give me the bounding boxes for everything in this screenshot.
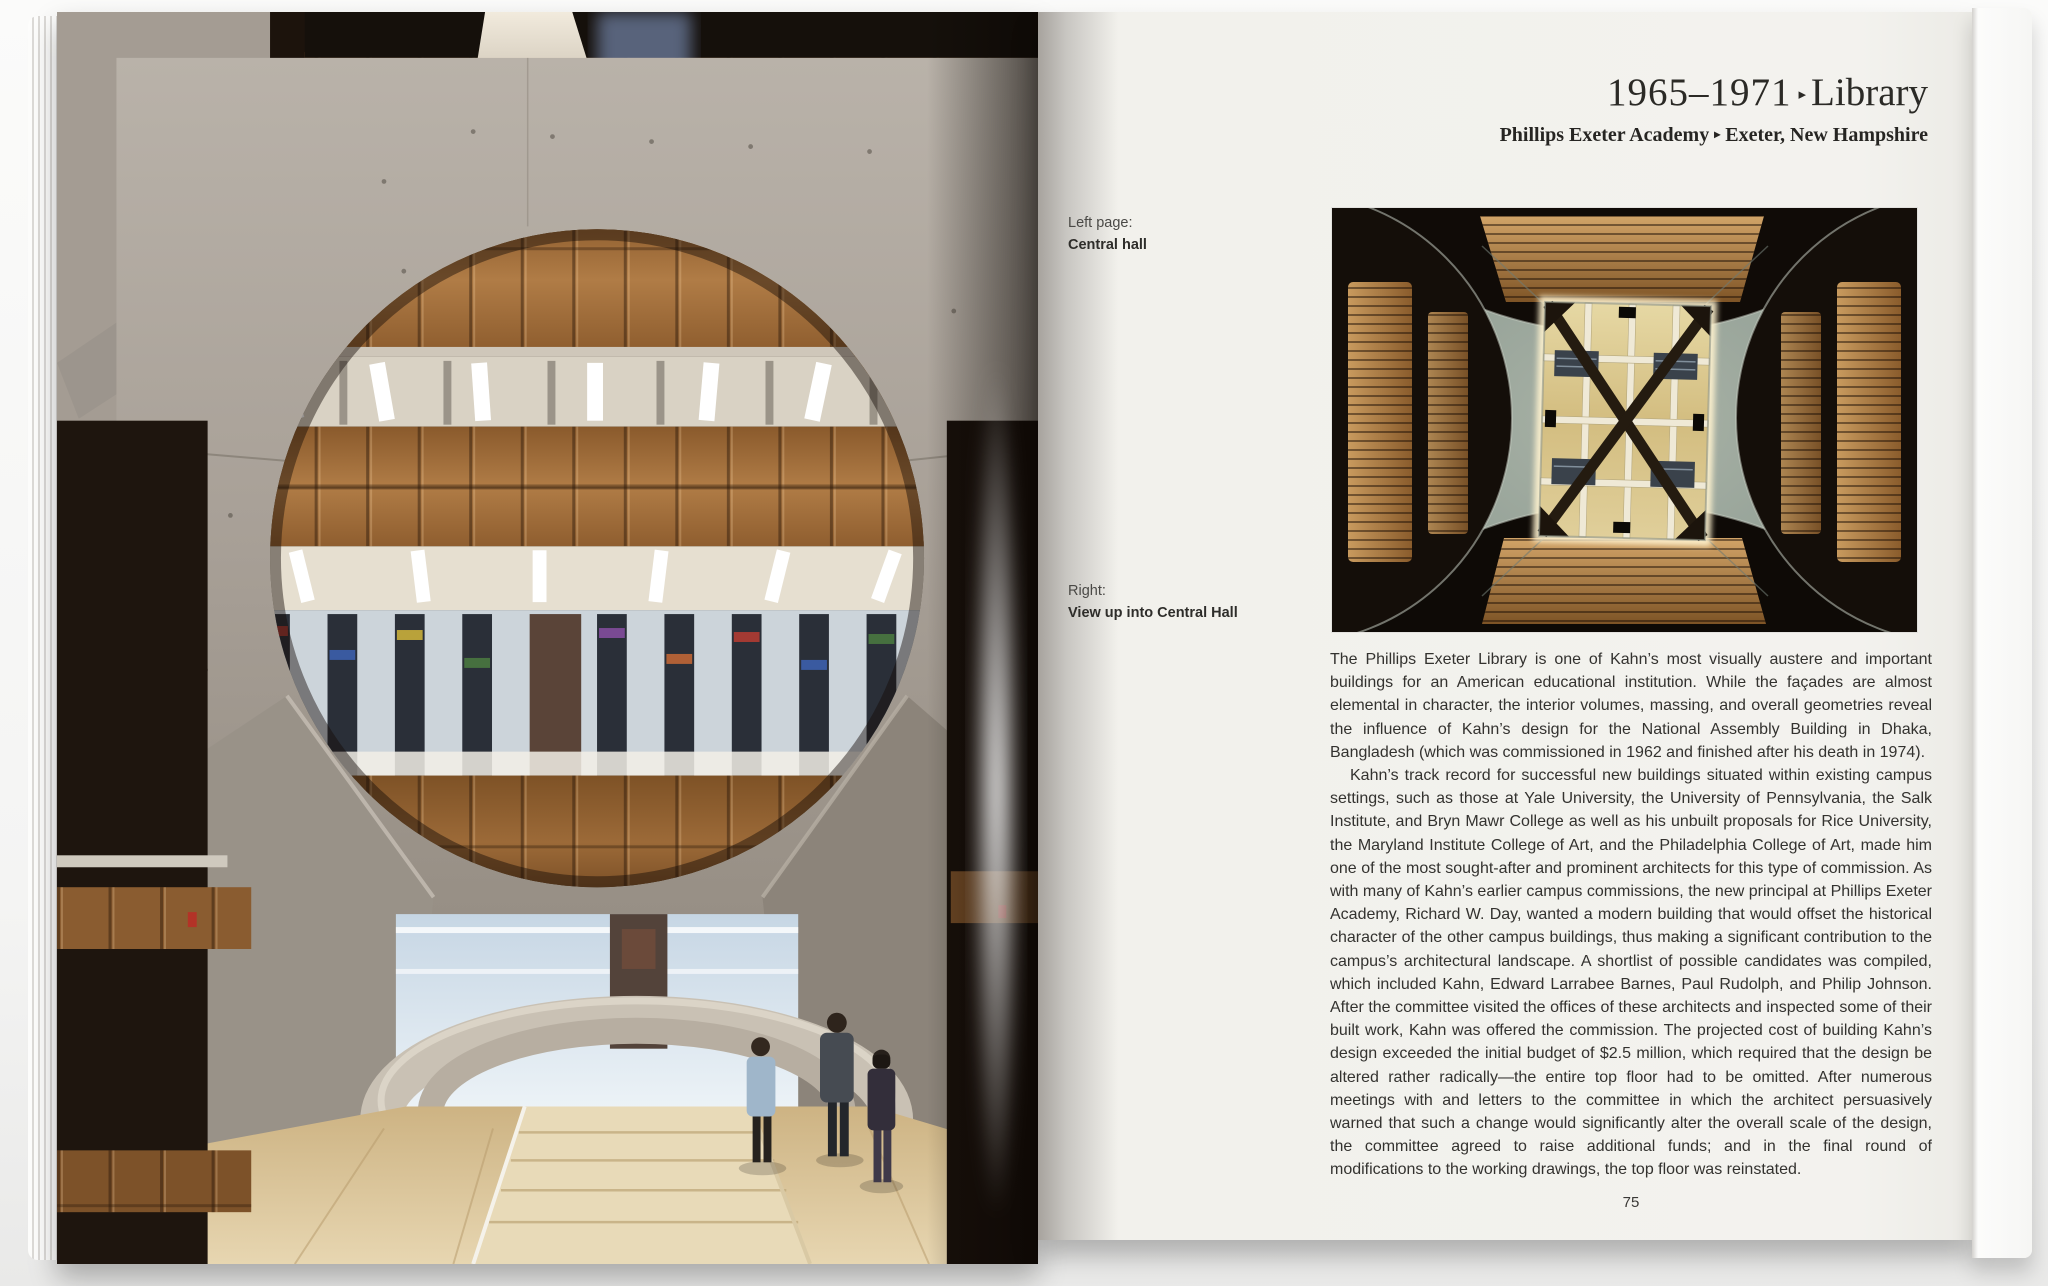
book-spread: 1965–1971▸Library Phillips Exeter Academ… [0,0,2048,1286]
central-hall-photo [57,12,1038,1264]
caption-right: Right: View up into Central Hall [1068,580,1318,624]
gutter-shadow [1038,12,1118,1240]
caption-text: Central hall [1068,234,1318,256]
subtitle-academy: Phillips Exeter Academy [1500,124,1710,146]
left-page [57,12,1038,1264]
left-page-edge-stack [28,16,58,1260]
subtitle-location: Exeter, New Hampshire [1725,124,1928,146]
caption-label: Left page: [1068,212,1318,234]
caption-text: View up into Central Hall [1068,602,1318,624]
page-number: 75 [1330,1194,1932,1211]
article-body: The Phillips Exeter Library is one of Ka… [1330,648,1932,1182]
title-arrow-icon: ▸ [1792,87,1812,103]
right-page-edge [1972,8,2032,1258]
title-name: Library [1811,71,1928,114]
title-years: 1965–1971 [1607,71,1792,114]
page-title: 1965–1971▸Library [1607,70,1928,115]
subtitle-arrow-icon: ▸ [1709,127,1725,141]
photo-view-up-central-hall [1332,208,1917,632]
paragraph: The Phillips Exeter Library is one of Ka… [1330,648,1932,764]
skylight [1533,296,1717,547]
right-page: 1965–1971▸Library Phillips Exeter Academ… [1038,12,1972,1240]
paragraph: Kahn’s track record for successful new b… [1330,764,1932,1182]
caption-left-page: Left page: Central hall [1068,212,1318,256]
page-subtitle: Phillips Exeter Academy▸Exeter, New Hamp… [1500,124,1928,147]
caption-label: Right: [1068,580,1318,602]
